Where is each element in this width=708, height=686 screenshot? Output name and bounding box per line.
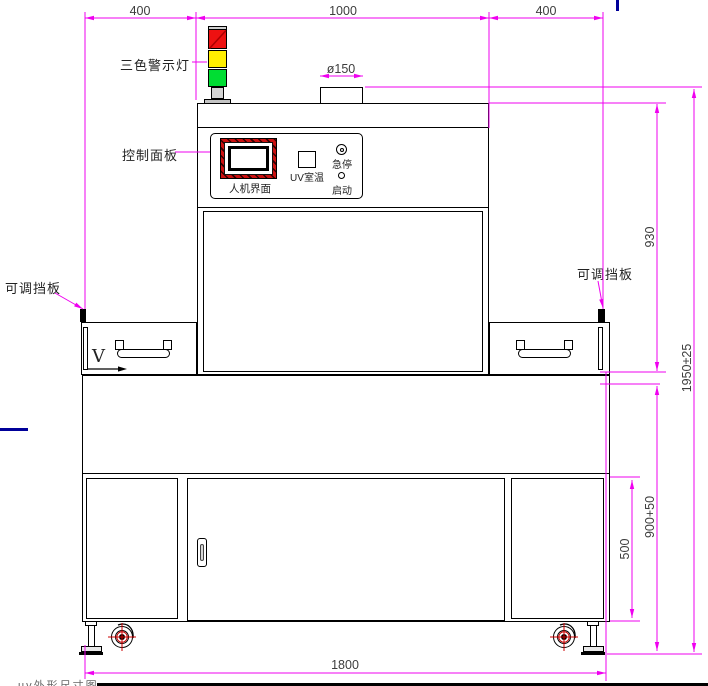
hmi-screen (228, 146, 269, 171)
handle-grip (117, 349, 170, 358)
base-left-panel (86, 478, 178, 619)
label-tower-light: 三色警示灯 (120, 55, 190, 74)
direction-label: V (92, 346, 105, 367)
stray-blue-mark-top (616, 0, 619, 11)
uv-temp-label: UV室温 (281, 169, 333, 184)
dim-duct-diameter: ø150 (327, 62, 356, 76)
dim-top-center: 1000 (329, 4, 357, 18)
dim-top-right: 400 (536, 4, 557, 18)
left-caster (108, 623, 136, 651)
tower-green-segment (208, 69, 227, 87)
door-handle-grip (200, 544, 204, 561)
start-button (338, 172, 345, 179)
estop-button-inner (340, 148, 344, 152)
cabinet-mid-line (197, 207, 489, 208)
left-baffle-tab (80, 309, 86, 322)
handle-grip (518, 349, 571, 358)
base-divider-line (82, 473, 610, 474)
titleblock-top-line (97, 683, 708, 686)
label-baffle-right: 可调挡板 (577, 264, 633, 283)
cutoff-footer-text: uv外形尺寸图 (18, 677, 99, 686)
engineering-drawing-canvas: 人机界面 UV室温 急停 启动 V (0, 0, 708, 686)
start-label: 启动 (329, 182, 355, 197)
uv-chamber-window (203, 211, 483, 372)
left-baffle (83, 327, 88, 370)
door-handle (197, 538, 207, 567)
hmi-screen-frame (220, 138, 277, 179)
cabinet-top-strip-line (197, 127, 489, 128)
tower-yellow-segment (208, 50, 227, 68)
stray-blue-mark-left (0, 428, 28, 431)
uv-temp-indicator (298, 151, 316, 168)
tower-red-segment (208, 29, 227, 49)
base-right-panel (511, 478, 604, 619)
left-conveyor-handle (113, 339, 175, 361)
dim-overall-width: 1800 (331, 658, 359, 672)
label-baffle-left: 可调挡板 (5, 278, 61, 297)
right-baffle (598, 327, 603, 370)
tower-pole (211, 87, 224, 99)
dim-door-height: 500 (618, 539, 632, 560)
base-center-door (187, 478, 505, 621)
dim-total-height: 1950±25 (680, 344, 694, 393)
label-control-panel: 控制面板 (122, 145, 178, 164)
estop-label: 急停 (329, 156, 355, 171)
tower-base (204, 99, 231, 104)
hmi-screen-bezel (224, 142, 273, 175)
dim-base-height: 900+50 (643, 496, 657, 538)
dim-top-left: 400 (130, 4, 151, 18)
right-caster (550, 623, 578, 651)
right-baffle-tab (598, 309, 605, 322)
right-conveyor-handle (514, 339, 576, 361)
dim-upper-height: 930 (643, 227, 657, 248)
hmi-label: 人机界面 (219, 181, 281, 196)
exhaust-duct (320, 87, 363, 104)
